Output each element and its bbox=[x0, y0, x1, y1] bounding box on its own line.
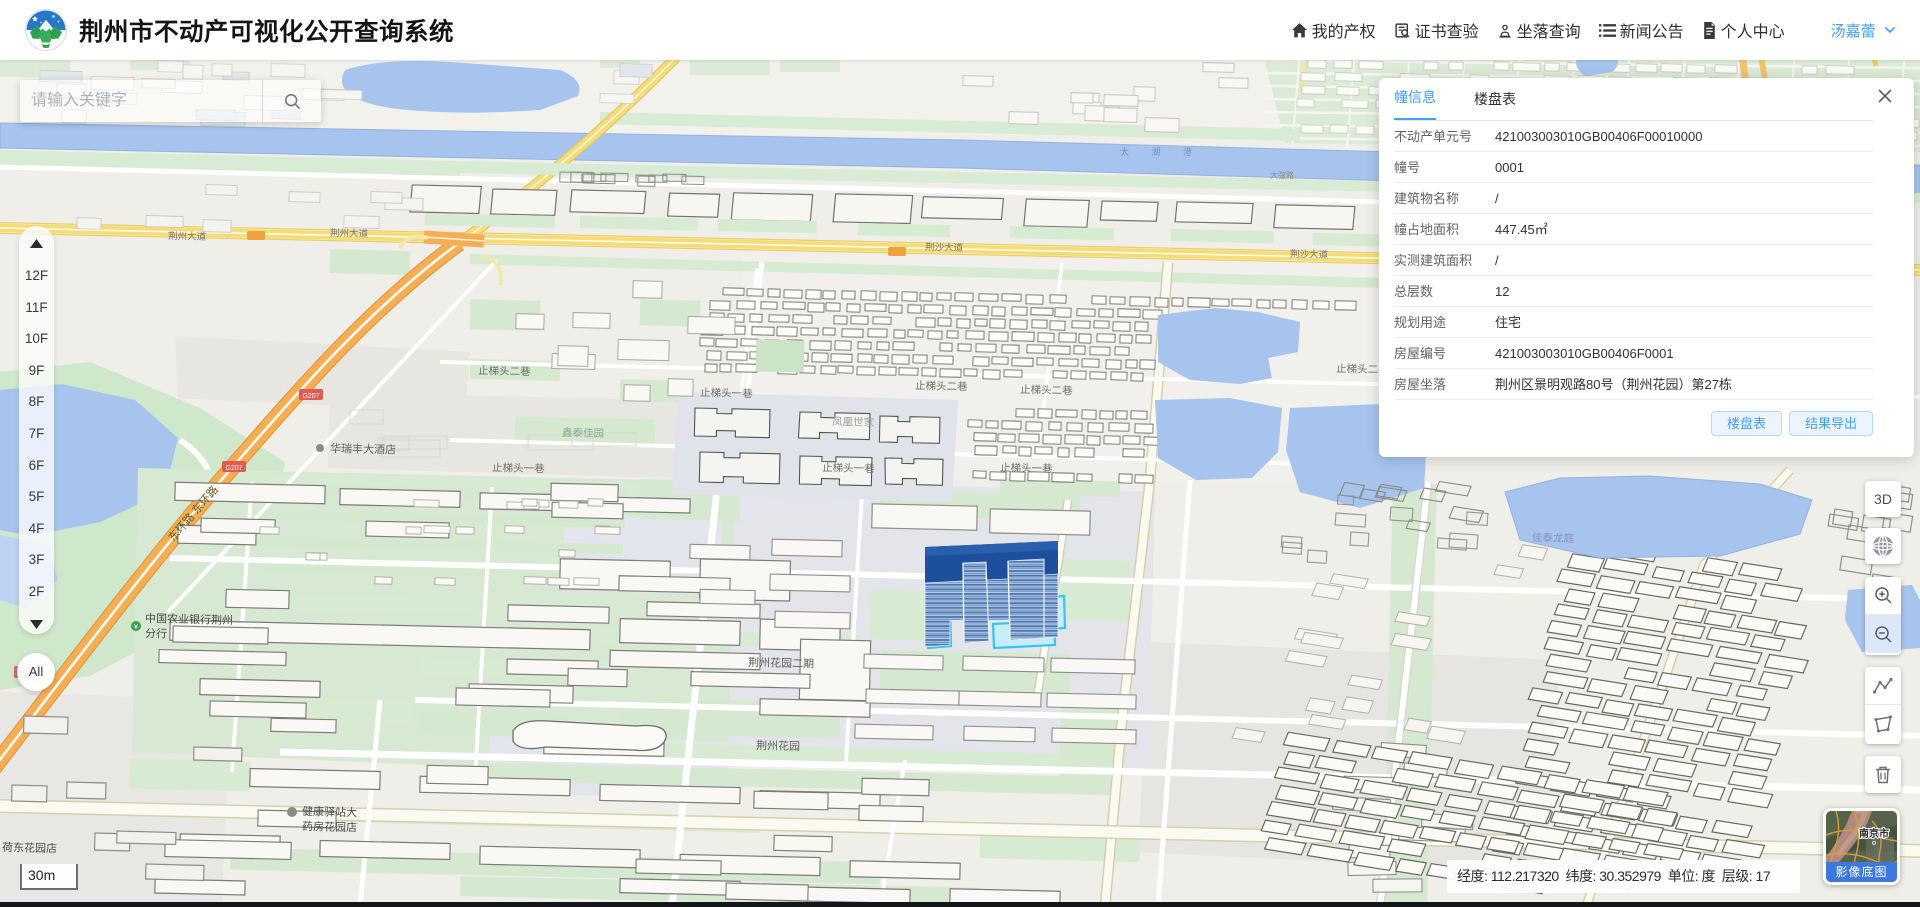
svg-text:¥: ¥ bbox=[134, 624, 138, 631]
svg-text:大弦路: 大弦路 bbox=[1270, 170, 1294, 180]
svg-text:凤凰世家: 凤凰世家 bbox=[832, 415, 875, 429]
svg-text:太 湖 港: 太 湖 港 bbox=[1120, 146, 1202, 157]
svg-text:止梯头一巷: 止梯头一巷 bbox=[700, 386, 753, 400]
svg-text:南京市: 南京市 bbox=[1859, 827, 1889, 840]
svg-text:荆沙大道: 荆沙大道 bbox=[1290, 248, 1329, 261]
svg-text:止梯头二巷: 止梯头二巷 bbox=[478, 364, 531, 378]
svg-text:分行: 分行 bbox=[145, 627, 167, 640]
svg-text:止梯头一巷: 止梯头一巷 bbox=[492, 461, 545, 475]
svg-text:止梯头一巷: 止梯头一巷 bbox=[1000, 461, 1053, 475]
svg-text:G207: G207 bbox=[302, 393, 319, 400]
svg-text:止梯头一巷: 止梯头一巷 bbox=[822, 461, 875, 475]
svg-text:G207: G207 bbox=[225, 465, 242, 472]
svg-text:荆州花园二期: 荆州花园二期 bbox=[748, 656, 814, 670]
svg-text:华瑞丰大酒店: 华瑞丰大酒店 bbox=[330, 441, 396, 456]
svg-text:荆州大道: 荆州大道 bbox=[330, 227, 369, 240]
svg-text:鑫泰佳园: 鑫泰佳园 bbox=[562, 426, 604, 440]
svg-text:止梯头二巷: 止梯头二巷 bbox=[915, 379, 968, 393]
svg-text:药房花园店: 药房花园店 bbox=[302, 819, 357, 834]
svg-text:荷东花园店: 荷东花园店 bbox=[2, 840, 57, 855]
svg-text:佳泰龙庭: 佳泰龙庭 bbox=[1532, 531, 1575, 545]
svg-text:止梯头二巷: 止梯头二巷 bbox=[1020, 383, 1073, 397]
svg-text:荆州花园: 荆州花园 bbox=[756, 739, 800, 753]
svg-text:荆沙大道: 荆沙大道 bbox=[925, 241, 964, 254]
svg-text:荆州大道: 荆州大道 bbox=[168, 230, 207, 243]
svg-text:健康驿站大: 健康驿站大 bbox=[302, 804, 357, 819]
